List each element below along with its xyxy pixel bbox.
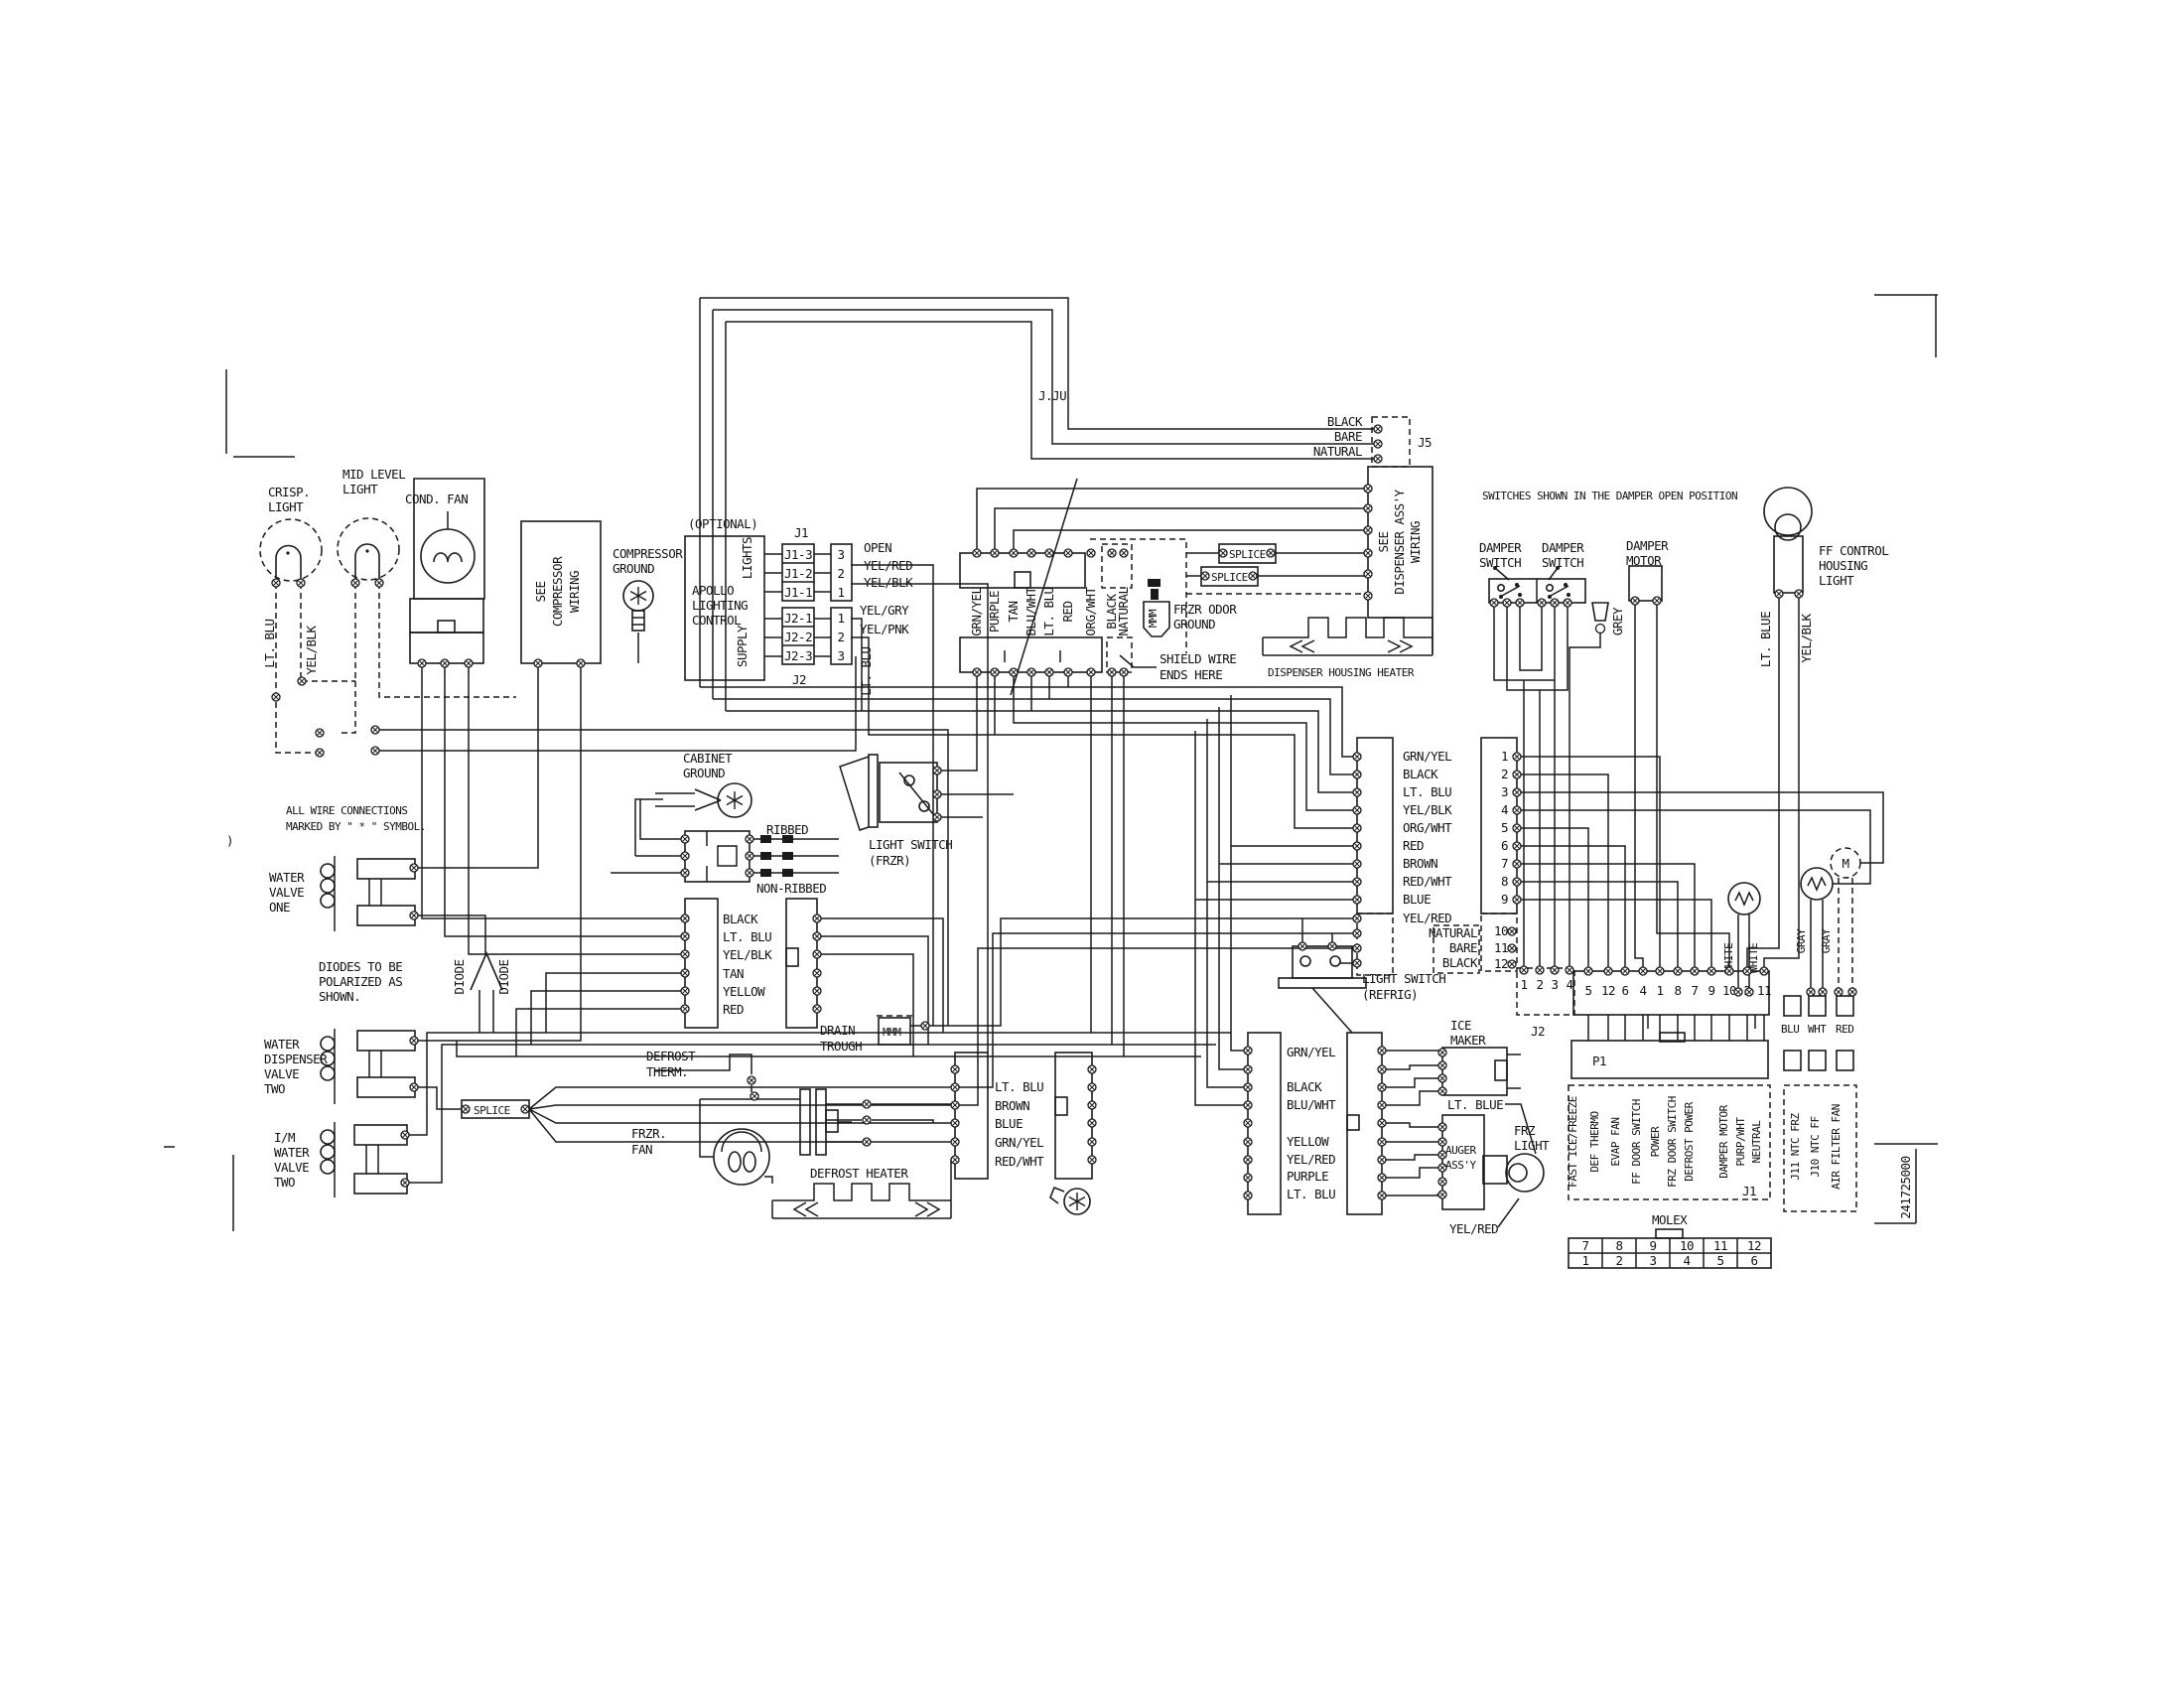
svg-text:GRAY: GRAY <box>1795 928 1808 953</box>
svg-text:DISPENSER ASS'Y: DISPENSER ASS'Y <box>1392 489 1407 594</box>
svg-text:3: 3 <box>1649 1253 1656 1268</box>
svg-text:GRAY: GRAY <box>1820 928 1833 953</box>
svg-text:SPLICE: SPLICE <box>1211 571 1248 584</box>
connector-j1: J1 J1-3 J1-2 J1-1 3 2 1 <box>782 525 852 601</box>
svg-text:GRN/YEL: GRN/YEL <box>1403 749 1451 764</box>
svg-text:NATURAL: NATURAL <box>1429 925 1477 940</box>
svg-text:3: 3 <box>1501 784 1508 799</box>
svg-text:BLU/WHT: BLU/WHT <box>1287 1097 1336 1112</box>
svg-text:YEL/RED: YEL/RED <box>1287 1152 1335 1167</box>
svg-text:J5: J5 <box>1418 435 1432 450</box>
svg-text:RED: RED <box>1060 601 1075 622</box>
registration-marks <box>164 295 1938 1231</box>
svg-text:2: 2 <box>1536 977 1543 992</box>
svg-text:2: 2 <box>837 630 844 644</box>
svg-text:8: 8 <box>1674 983 1681 998</box>
svg-text:SWITCH: SWITCH <box>1479 555 1521 570</box>
svg-text:LT. BLU: LT. BLU <box>995 1079 1043 1094</box>
svg-text:J1-1: J1-1 <box>784 585 812 600</box>
svg-text:1: 1 <box>837 585 844 600</box>
svg-text:LIGHT SWITCH: LIGHT SWITCH <box>1362 971 1445 986</box>
crisp-light-label: CRISP. <box>268 485 310 499</box>
wire-label-lt-blue-im: LT. BLUE <box>1447 1097 1503 1112</box>
wire-label-yel-pnk: YEL/PNK <box>860 622 909 636</box>
svg-text:ONE: ONE <box>269 900 290 914</box>
svg-text:DEFROST POWER: DEFROST POWER <box>1683 1101 1696 1181</box>
svg-text:FF CONTROL: FF CONTROL <box>1819 543 1888 558</box>
svg-text:TAN: TAN <box>1006 601 1021 622</box>
wire-label-open: OPEN <box>864 540 891 555</box>
connector-j2-plug: 1 2 3 4 J2 <box>1517 968 1574 1039</box>
svg-text:FRZ: FRZ <box>1514 1123 1536 1138</box>
svg-text:11: 11 <box>1494 940 1508 955</box>
svg-text:LIGHT: LIGHT <box>342 482 378 496</box>
svg-text:YELLOW: YELLOW <box>723 984 765 999</box>
svg-text:FRZR.: FRZR. <box>631 1126 666 1141</box>
svg-text:J1-3: J1-3 <box>784 547 812 562</box>
svg-text:NATURAL: NATURAL <box>1313 444 1362 459</box>
svg-text:9: 9 <box>1649 1238 1656 1253</box>
svg-text:DEFROST HEATER: DEFROST HEATER <box>810 1166 908 1181</box>
svg-text:1: 1 <box>1501 749 1508 764</box>
water-valve-one: WATER VALVE ONE <box>269 856 415 931</box>
svg-text:RIBBED: RIBBED <box>766 822 808 837</box>
svg-text:J10 NTC FF: J10 NTC FF <box>1809 1116 1822 1177</box>
svg-text:VALVE: VALVE <box>274 1160 309 1175</box>
svg-text:DAMPER MOTOR: DAMPER MOTOR <box>1717 1104 1730 1178</box>
svg-text:6: 6 <box>1501 838 1508 853</box>
svg-text:PURPLE: PURPLE <box>987 591 1002 633</box>
svg-text:5: 5 <box>1501 820 1508 835</box>
svg-text:10: 10 <box>1680 1238 1694 1253</box>
svg-text:BLACK: BLACK <box>1327 414 1363 429</box>
svg-text:LT. BLU: LT. BLU <box>723 929 771 944</box>
svg-text:1: 1 <box>837 611 844 626</box>
light-switch-refrig: LIGHT SWITCH (REFRIG) <box>1279 946 1445 1033</box>
svg-text:CABINET: CABINET <box>683 751 733 766</box>
wire-label-yel-gry: YEL/GRY <box>860 603 909 618</box>
svg-text:BLU: BLU <box>1781 1023 1799 1036</box>
svg-text:EVAP FAN: EVAP FAN <box>1609 1118 1622 1167</box>
svg-text:BROWN: BROWN <box>1403 856 1437 871</box>
svg-text:SEE: SEE <box>1376 531 1391 552</box>
svg-text:DEF THERMO: DEF THERMO <box>1588 1111 1601 1172</box>
wire-label-yel-red-im: YEL/RED <box>1449 1221 1498 1236</box>
svg-text:FF DOOR SWITCH: FF DOOR SWITCH <box>1630 1099 1643 1185</box>
svg-text:11: 11 <box>1757 983 1771 998</box>
svg-text:LIGHT SWITCH: LIGHT SWITCH <box>869 837 952 852</box>
svg-text:7: 7 <box>1581 1238 1588 1253</box>
svg-text:DAMPER: DAMPER <box>1542 540 1584 555</box>
svg-text:(FRZR): (FRZR) <box>869 853 910 868</box>
svg-text:RED: RED <box>1403 838 1424 853</box>
svg-text:SPLICE: SPLICE <box>474 1104 510 1117</box>
svg-text:NATURAL: NATURAL <box>1116 587 1131 635</box>
svg-text:BARE: BARE <box>1449 940 1477 955</box>
ground-icon <box>630 587 646 605</box>
svg-text:SHOWN.: SHOWN. <box>319 989 360 1004</box>
svg-text:MAKER: MAKER <box>1450 1033 1486 1048</box>
svg-text:6: 6 <box>1621 983 1628 998</box>
svg-text:8: 8 <box>1615 1238 1622 1253</box>
svg-text:J2-2: J2-2 <box>784 630 812 644</box>
svg-text:P1: P1 <box>1592 1054 1606 1068</box>
svg-text:1: 1 <box>1581 1253 1588 1268</box>
svg-text:PURP/WHT: PURP/WHT <box>1734 1117 1747 1167</box>
wire-label-yel-blk-ff: YEL/BLK <box>1799 613 1814 662</box>
svg-text:RED/WHT: RED/WHT <box>995 1154 1044 1169</box>
svg-text:2: 2 <box>1501 767 1508 781</box>
svg-text:GRN/YEL: GRN/YEL <box>995 1135 1043 1150</box>
compressor-wiring-box: SEE COMPRESSOR WIRING <box>521 521 601 663</box>
frzr-odor-ground: MMM FRZR ODOR GROUND <box>1144 579 1237 636</box>
svg-text:LIGHT: LIGHT <box>1819 573 1854 588</box>
defrost-connectors: LT. BLU BROWN BLUE GRN/YEL RED/WHT <box>955 1053 1092 1214</box>
main-harness-connectors: GRN/YEL PURPLE TAN BLU/WHT LT. BLU RED O… <box>960 544 1132 672</box>
svg-text:MARKED BY " * " SYMBOL.: MARKED BY " * " SYMBOL. <box>286 820 426 833</box>
svg-text:5: 5 <box>1716 1253 1723 1268</box>
svg-text:PURPLE: PURPLE <box>1287 1169 1328 1184</box>
svg-text:MMM: MMM <box>1147 609 1160 628</box>
svg-text:4: 4 <box>1639 983 1646 998</box>
svg-text:HOUSING: HOUSING <box>1819 558 1867 573</box>
defrost-heater-assembly: DEFROST HEATER <box>772 1089 951 1218</box>
splice-box-valves: SPLICE <box>462 1100 529 1118</box>
switches-note: SWITCHES SHOWN IN THE DAMPER OPEN POSITI… <box>1482 490 1737 502</box>
wiring <box>375 298 1883 1227</box>
mid-level-light-label: MID LEVEL <box>342 467 405 482</box>
dispenser-assembly-box: SEE DISPENSER ASS'Y WIRING <box>1368 467 1433 618</box>
svg-text:SHIELD WIRE: SHIELD WIRE <box>1160 651 1236 666</box>
svg-text:1: 1 <box>1656 983 1663 998</box>
svg-text:BLUE: BLUE <box>1403 892 1431 907</box>
svg-text:GROUND: GROUND <box>683 766 725 780</box>
svg-text:FRZ DOOR SWITCH: FRZ DOOR SWITCH <box>1666 1096 1679 1188</box>
svg-text:6: 6 <box>1750 1253 1757 1268</box>
crisp-light: CRISP. LIGHT <box>260 485 322 581</box>
ribbed-plugs: RIBBED NON-RIBBED <box>685 822 839 896</box>
svg-text:SWITCH: SWITCH <box>1542 555 1583 570</box>
part-number: 241725000 <box>1898 1156 1913 1218</box>
svg-text:BLACK: BLACK <box>1287 1079 1322 1094</box>
dispenser-housing-heater: DISPENSER HOUSING HEATER <box>1263 618 1433 679</box>
im-water-valve-two: I/M WATER VALVE TWO <box>274 1122 407 1197</box>
svg-text:3: 3 <box>1551 977 1558 992</box>
wire-label-yel-blk: YEL/BLK <box>304 625 319 674</box>
svg-text:J2-1: J2-1 <box>784 611 812 626</box>
svg-text:4: 4 <box>1683 1253 1690 1268</box>
svg-text:I/M: I/M <box>274 1130 295 1145</box>
svg-text:GROUND: GROUND <box>1173 617 1215 632</box>
svg-text:GRN/YEL: GRN/YEL <box>1287 1045 1335 1059</box>
svg-text:BARE: BARE <box>1334 429 1362 444</box>
ff-control-housing-light: FF CONTROL HOUSING LIGHT LT. BLUE YEL/BL… <box>1758 488 1888 667</box>
svg-text:POWER: POWER <box>1649 1126 1662 1157</box>
svg-text:DRAIN: DRAIN <box>820 1023 855 1038</box>
drain-trough: MMM DRAIN TROUGH <box>820 1016 912 1054</box>
svg-text:9: 9 <box>1707 983 1714 998</box>
splice-boxes-dispenser: SPLICE SPLICE <box>1201 544 1276 586</box>
svg-text:THERM.: THERM. <box>646 1064 688 1079</box>
svg-text:RED: RED <box>723 1002 744 1017</box>
svg-text:7: 7 <box>1501 856 1508 871</box>
shield-wire-note: SHIELD WIRE ENDS HERE <box>1011 479 1368 695</box>
cond-fan-label: COND. FAN <box>405 492 468 506</box>
svg-text:10: 10 <box>1494 923 1508 938</box>
svg-text:8: 8 <box>1501 874 1508 889</box>
compressor-ground: COMPRESSOR GROUND <box>613 546 683 631</box>
svg-text:WATER: WATER <box>274 1145 310 1160</box>
svg-text:2: 2 <box>1615 1253 1622 1268</box>
svg-text:J2: J2 <box>792 672 806 687</box>
svg-text:J1: J1 <box>1742 1184 1756 1198</box>
svg-text:RED/WHT: RED/WHT <box>1403 874 1452 889</box>
svg-text:(REFRIG): (REFRIG) <box>1362 987 1418 1002</box>
terminals <box>272 425 1856 1199</box>
svg-text:GROUND: GROUND <box>613 561 654 576</box>
svg-text:J2-3: J2-3 <box>784 648 812 663</box>
svg-text:11: 11 <box>1713 1238 1727 1253</box>
svg-text:SEE: SEE <box>533 581 548 602</box>
svg-text:YEL/BLK: YEL/BLK <box>1403 802 1452 817</box>
ground-icon <box>727 791 743 809</box>
svg-text:YEL/RED: YEL/RED <box>1403 911 1451 925</box>
svg-text:ORG/WHT: ORG/WHT <box>1083 586 1098 635</box>
all-wire-note: ALL WIRE CONNECTIONS <box>286 804 407 817</box>
motor-m-label: M <box>1842 856 1848 871</box>
svg-text:LT. BLU: LT. BLU <box>1287 1187 1335 1201</box>
board-p1: P1 <box>1571 1033 1768 1078</box>
svg-text:DISPENSER HOUSING HEATER: DISPENSER HOUSING HEATER <box>1268 666 1415 679</box>
svg-text:AUGER: AUGER <box>1445 1144 1476 1157</box>
mid-level-light: MID LEVEL LIGHT <box>338 467 405 580</box>
svg-text:TWO: TWO <box>264 1081 285 1096</box>
svg-text:SPLICE: SPLICE <box>1229 548 1266 561</box>
svg-text:DAMPER: DAMPER <box>1626 538 1669 553</box>
diodes-note: DIODES TO BE <box>319 959 402 974</box>
door-harness-connectors: GRN/YEL BLACK LT. BLU YEL/BLK ORG/WHT RE… <box>1357 738 1517 975</box>
svg-text:BLACK: BLACK <box>1403 767 1438 781</box>
svg-text:YELLOW: YELLOW <box>1287 1134 1329 1149</box>
svg-text:POLARIZED AS: POLARIZED AS <box>319 974 402 989</box>
svg-text:7: 7 <box>1691 983 1698 998</box>
svg-text:BROWN: BROWN <box>995 1098 1029 1113</box>
board-edge-connector: 5 12 6 4 1 8 7 9 10 2 11 <box>1573 971 1771 1029</box>
damper-switches: DAMPER SWITCH DAMPER SWITCH <box>1479 540 1585 603</box>
wiring-diagram: ) J.JU 241725000 CRISP. LIGHT MID LEVEL … <box>0 0 2184 1688</box>
svg-text:SUPPLY: SUPPLY <box>735 625 750 667</box>
svg-text:VALVE: VALVE <box>269 885 304 900</box>
svg-text:1: 1 <box>1520 977 1527 992</box>
svg-text:FRZR ODOR: FRZR ODOR <box>1173 602 1237 617</box>
plug-contact <box>1596 625 1605 633</box>
svg-text:AIR FILTER FAN: AIR FILTER FAN <box>1830 1104 1843 1190</box>
svg-text:J1-2: J1-2 <box>784 566 812 581</box>
svg-text:TAN: TAN <box>723 966 744 981</box>
svg-text:BLACK: BLACK <box>1442 955 1478 970</box>
svg-text:YEL/BLK: YEL/BLK <box>723 947 772 962</box>
svg-text:WATER: WATER <box>264 1037 300 1052</box>
svg-text:ENDS HERE: ENDS HERE <box>1160 667 1222 682</box>
svg-text:MOLEX: MOLEX <box>1652 1212 1688 1227</box>
svg-text:BLUE: BLUE <box>995 1116 1023 1131</box>
svg-text:DIODE: DIODE <box>496 959 511 994</box>
svg-text:12: 12 <box>1601 983 1615 998</box>
svg-text:NON-RIBBED: NON-RIBBED <box>756 881 826 896</box>
svg-text:COMPRESSOR: COMPRESSOR <box>613 546 683 561</box>
ground-icon <box>1069 1193 1085 1210</box>
ice-maker: ICE MAKER <box>1442 1018 1521 1095</box>
svg-text:3: 3 <box>837 648 844 663</box>
wire-label-lt-blu: LT. BLU <box>262 619 277 667</box>
svg-text:GRN/YEL: GRN/YEL <box>969 587 984 635</box>
svg-text:J2: J2 <box>1531 1024 1545 1039</box>
board-j1-signals: FAST ICE/FREEZE DEF THERMO EVAP FAN FF D… <box>1567 1085 1770 1199</box>
svg-text:4: 4 <box>1501 802 1508 817</box>
icemaker-connectors: GRN/YEL BLACK BLU/WHT YELLOW YEL/RED PUR… <box>1248 1033 1382 1214</box>
svg-text:LT. BLU: LT. BLU <box>1403 784 1451 799</box>
svg-text:DAMPER: DAMPER <box>1479 540 1522 555</box>
auger-assembly: AUGER ASS'Y <box>1442 1115 1484 1209</box>
diodes: DIODE DIODE <box>452 953 511 995</box>
connector-j2: J2-1 J2-2 J2-3 1 2 3 J2 <box>782 608 852 687</box>
condenser-fan: COND. FAN <box>405 479 484 663</box>
artifact-paren: ) <box>226 833 233 848</box>
svg-text:12: 12 <box>1747 1238 1761 1253</box>
mid-harness-connectors: BLACK LT. BLU YEL/BLK TAN YELLOW RED <box>685 899 817 1028</box>
svg-text:9: 9 <box>1501 892 1508 907</box>
svg-text:WIRING: WIRING <box>1408 521 1423 563</box>
svg-text:ICE: ICE <box>1450 1018 1471 1033</box>
svg-text:COMPRESSOR: COMPRESSOR <box>550 556 565 627</box>
svg-text:J1: J1 <box>794 525 808 540</box>
wire-label-yel-blk: YEL/BLK <box>864 575 913 590</box>
svg-text:ASS'Y: ASS'Y <box>1445 1159 1476 1172</box>
svg-text:WHT: WHT <box>1808 1023 1827 1036</box>
svg-text:TROUGH: TROUGH <box>820 1039 862 1054</box>
svg-text:WATER: WATER <box>269 870 305 885</box>
cabinet-ground: CABINET GROUND <box>655 751 751 817</box>
svg-text:VALVE: VALVE <box>264 1066 299 1081</box>
svg-text:LIGHT: LIGHT <box>268 499 304 514</box>
svg-text:4: 4 <box>1566 977 1572 992</box>
svg-text:TWO: TWO <box>274 1175 295 1190</box>
svg-text:5: 5 <box>1584 983 1591 998</box>
wiring-diagram-page: ) J.JU 241725000 CRISP. LIGHT MID LEVEL … <box>0 0 2184 1688</box>
svg-text:BLACK: BLACK <box>723 912 758 926</box>
svg-text:J11 NTC FRZ: J11 NTC FRZ <box>1789 1112 1802 1180</box>
frz-light: FRZ LIGHT <box>1483 1123 1550 1192</box>
svg-text:NEUTRAL: NEUTRAL <box>1750 1120 1763 1164</box>
molex-connector: MOLEX 7 8 9 10 11 12 1 2 3 4 5 6 <box>1569 1212 1771 1268</box>
svg-text:ORG/WHT: ORG/WHT <box>1403 820 1452 835</box>
svg-text:(OPTIONAL): (OPTIONAL) <box>688 516 757 531</box>
svg-text:DIODE: DIODE <box>452 959 467 994</box>
svg-text:RED: RED <box>1836 1023 1853 1036</box>
svg-text:2: 2 <box>837 566 844 581</box>
svg-text:LT. BLU: LT. BLU <box>1041 587 1056 635</box>
wire-label-grey: GREY <box>1610 607 1625 635</box>
svg-text:FAST ICE/FREEZE: FAST ICE/FREEZE <box>1567 1096 1579 1188</box>
svg-text:DISPENSER: DISPENSER <box>264 1052 328 1066</box>
wire-label-lt-blue: LT. BLUE <box>1758 612 1773 667</box>
svg-text:12: 12 <box>1494 956 1508 971</box>
water-dispenser-valve-two: WATER DISPENSER VALVE TWO <box>264 1029 415 1104</box>
svg-text:FAN: FAN <box>631 1142 652 1157</box>
svg-text:3: 3 <box>837 547 844 562</box>
svg-text:WIRING: WIRING <box>567 571 582 613</box>
svg-text:LIGHTS: LIGHTS <box>740 537 754 579</box>
